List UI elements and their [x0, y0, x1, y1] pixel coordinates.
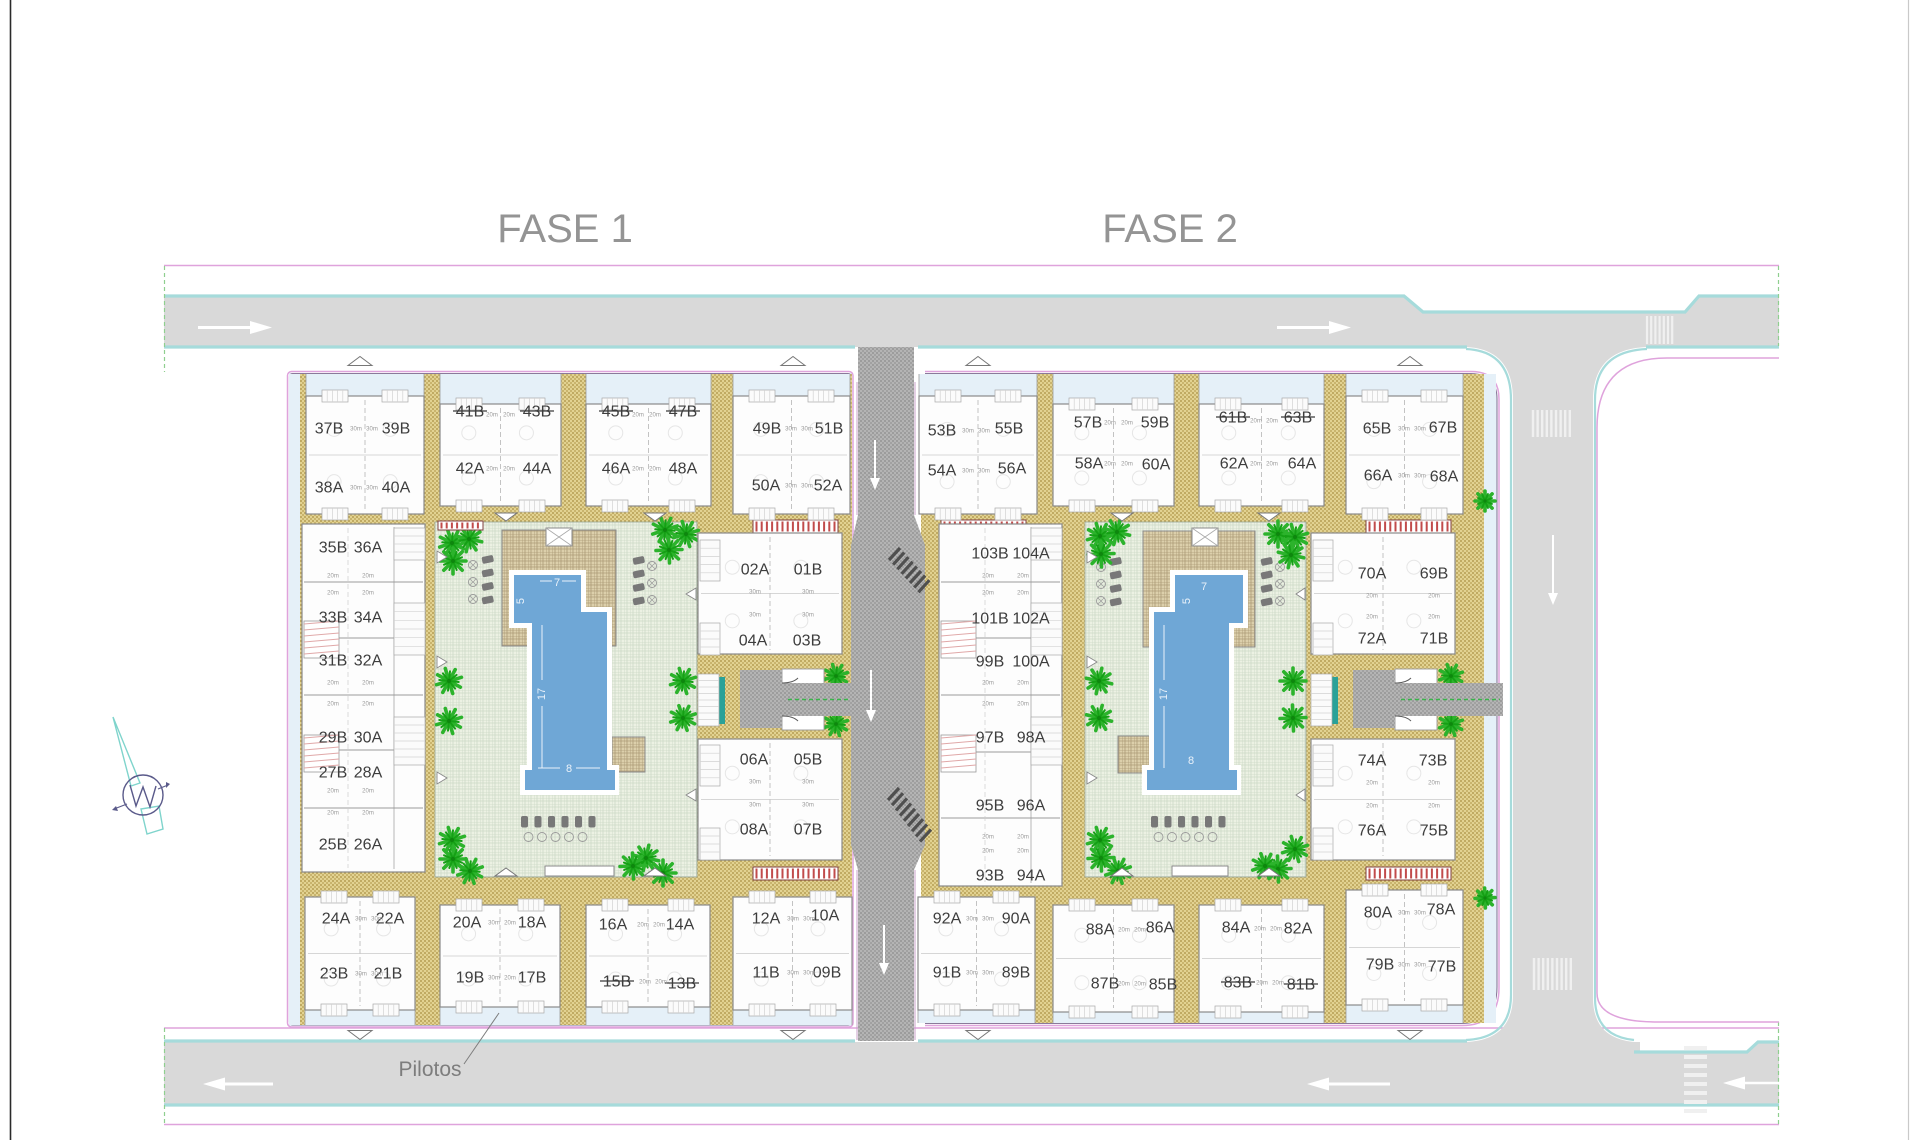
svg-text:20m: 20m: [982, 591, 994, 597]
svg-text:104A: 104A: [1012, 546, 1050, 563]
svg-text:20m: 20m: [362, 591, 374, 597]
svg-text:20m: 20m: [1272, 981, 1284, 987]
svg-text:09B: 09B: [813, 965, 841, 982]
svg-text:20m: 20m: [362, 789, 374, 795]
svg-text:20m: 20m: [1254, 927, 1266, 933]
svg-text:59B: 59B: [1141, 415, 1169, 432]
svg-text:04A: 04A: [739, 633, 768, 650]
svg-text:30m: 30m: [982, 917, 994, 923]
svg-text:83B: 83B: [1224, 975, 1252, 992]
svg-text:20m: 20m: [1134, 928, 1146, 934]
svg-text:30m: 30m: [366, 486, 378, 492]
svg-text:20m: 20m: [1017, 574, 1029, 580]
svg-text:30m: 30m: [366, 427, 378, 433]
svg-text:30m: 30m: [355, 917, 367, 923]
svg-text:57B: 57B: [1074, 415, 1102, 432]
svg-text:20m: 20m: [362, 702, 374, 708]
svg-text:20m: 20m: [1366, 594, 1378, 600]
svg-text:50A: 50A: [752, 478, 781, 495]
svg-text:20m: 20m: [1366, 804, 1378, 810]
svg-text:30m: 30m: [371, 917, 383, 923]
svg-text:30m: 30m: [962, 469, 974, 475]
svg-text:69B: 69B: [1420, 566, 1448, 583]
svg-text:30m: 30m: [749, 803, 761, 809]
svg-text:37B: 37B: [315, 421, 343, 438]
svg-text:30m: 30m: [966, 917, 978, 923]
svg-text:62A: 62A: [1220, 456, 1249, 473]
svg-text:73B: 73B: [1419, 753, 1447, 770]
svg-text:16A: 16A: [599, 917, 628, 934]
svg-text:25B: 25B: [319, 837, 347, 854]
svg-text:30m: 30m: [1414, 474, 1426, 480]
svg-text:98A: 98A: [1017, 730, 1046, 747]
svg-text:20m: 20m: [649, 467, 661, 473]
svg-text:20m: 20m: [1428, 781, 1440, 787]
svg-text:30m: 30m: [1398, 911, 1410, 917]
svg-text:30m: 30m: [1414, 911, 1426, 917]
svg-text:20m: 20m: [1017, 681, 1029, 687]
svg-text:01B: 01B: [794, 562, 822, 579]
svg-text:94A: 94A: [1017, 868, 1046, 885]
svg-text:20m: 20m: [639, 980, 651, 986]
svg-text:90A: 90A: [1002, 911, 1031, 928]
svg-text:30m: 30m: [1414, 427, 1426, 433]
svg-text:20m: 20m: [327, 681, 339, 687]
svg-text:42A: 42A: [456, 461, 485, 478]
svg-text:20m: 20m: [1118, 982, 1130, 988]
svg-text:20m: 20m: [1121, 462, 1133, 468]
svg-text:101B: 101B: [971, 611, 1008, 628]
svg-text:93B: 93B: [976, 868, 1004, 885]
svg-text:66A: 66A: [1364, 468, 1393, 485]
svg-text:72A: 72A: [1358, 631, 1387, 648]
svg-text:46A: 46A: [602, 461, 631, 478]
svg-text:10A: 10A: [811, 908, 840, 925]
svg-text:49B: 49B: [753, 421, 781, 438]
svg-text:30m: 30m: [1398, 963, 1410, 969]
svg-text:79B: 79B: [1366, 957, 1394, 974]
svg-text:20m: 20m: [362, 681, 374, 687]
svg-text:43B: 43B: [523, 404, 551, 421]
svg-text:20m: 20m: [1266, 419, 1278, 425]
svg-text:67B: 67B: [1429, 420, 1457, 437]
svg-text:30m: 30m: [978, 469, 990, 475]
svg-text:89B: 89B: [1002, 965, 1030, 982]
svg-text:99B: 99B: [976, 654, 1004, 671]
svg-text:20m: 20m: [1104, 421, 1116, 427]
svg-text:30m: 30m: [962, 429, 974, 435]
svg-text:76A: 76A: [1358, 823, 1387, 840]
svg-text:45B: 45B: [602, 404, 630, 421]
svg-text:23B: 23B: [320, 966, 348, 983]
svg-text:06A: 06A: [740, 752, 769, 769]
svg-text:05B: 05B: [794, 752, 822, 769]
svg-text:32A: 32A: [354, 653, 383, 670]
svg-text:03B: 03B: [793, 633, 821, 650]
svg-text:60A: 60A: [1142, 457, 1171, 474]
svg-text:14A: 14A: [666, 917, 695, 934]
svg-text:17: 17: [536, 688, 548, 700]
svg-text:20m: 20m: [1121, 421, 1133, 427]
svg-text:61B: 61B: [1219, 410, 1247, 427]
svg-text:30m: 30m: [488, 921, 500, 927]
svg-text:33B: 33B: [319, 610, 347, 627]
svg-text:20m: 20m: [1104, 462, 1116, 468]
svg-text:63B: 63B: [1284, 410, 1312, 427]
svg-text:20A: 20A: [453, 915, 482, 932]
svg-text:30m: 30m: [785, 484, 797, 490]
svg-text:20m: 20m: [649, 413, 661, 419]
svg-text:20m: 20m: [362, 574, 374, 580]
svg-text:51B: 51B: [815, 421, 843, 438]
svg-text:20m: 20m: [982, 681, 994, 687]
svg-text:81B: 81B: [1287, 977, 1315, 994]
svg-text:30m: 30m: [355, 972, 367, 978]
svg-text:26A: 26A: [354, 837, 383, 854]
svg-text:30m: 30m: [787, 917, 799, 923]
svg-text:20m: 20m: [1250, 462, 1262, 468]
svg-text:30m: 30m: [978, 429, 990, 435]
svg-text:20m: 20m: [982, 849, 994, 855]
svg-text:30m: 30m: [803, 971, 815, 977]
svg-text:20m: 20m: [1428, 615, 1440, 621]
svg-text:07B: 07B: [794, 822, 822, 839]
svg-text:20m: 20m: [327, 789, 339, 795]
svg-text:80A: 80A: [1364, 905, 1393, 922]
svg-text:30m: 30m: [1414, 963, 1426, 969]
svg-text:34A: 34A: [354, 610, 383, 627]
svg-text:30m: 30m: [802, 590, 814, 596]
svg-text:36A: 36A: [354, 540, 383, 557]
svg-text:FASE 2: FASE 2: [1102, 207, 1238, 251]
svg-text:30m: 30m: [966, 971, 978, 977]
svg-text:20m: 20m: [504, 976, 516, 982]
svg-text:20m: 20m: [1366, 615, 1378, 621]
svg-text:30m: 30m: [801, 484, 813, 490]
svg-text:75B: 75B: [1420, 823, 1448, 840]
svg-text:19B: 19B: [456, 970, 484, 987]
svg-text:15B: 15B: [603, 974, 631, 991]
svg-text:30m: 30m: [350, 486, 362, 492]
svg-text:47B: 47B: [669, 404, 697, 421]
svg-text:95B: 95B: [976, 798, 1004, 815]
svg-text:92A: 92A: [933, 911, 962, 928]
svg-text:20m: 20m: [1428, 804, 1440, 810]
svg-text:74A: 74A: [1358, 753, 1387, 770]
svg-text:78A: 78A: [1427, 902, 1456, 919]
svg-text:55B: 55B: [995, 421, 1023, 438]
svg-text:64A: 64A: [1288, 456, 1317, 473]
svg-text:96A: 96A: [1017, 798, 1046, 815]
svg-text:20m: 20m: [1366, 781, 1378, 787]
svg-text:58A: 58A: [1075, 456, 1104, 473]
svg-text:20m: 20m: [1256, 981, 1268, 987]
svg-text:20m: 20m: [1017, 591, 1029, 597]
svg-text:20m: 20m: [1134, 982, 1146, 988]
svg-text:82A: 82A: [1284, 921, 1313, 938]
svg-text:20m: 20m: [486, 413, 498, 419]
svg-text:08A: 08A: [740, 822, 769, 839]
svg-text:5: 5: [1181, 598, 1193, 604]
svg-text:18A: 18A: [518, 915, 547, 932]
svg-text:30m: 30m: [1398, 427, 1410, 433]
svg-text:20m: 20m: [1266, 462, 1278, 468]
svg-text:20m: 20m: [1017, 835, 1029, 841]
svg-text:38A: 38A: [315, 480, 344, 497]
svg-text:30m: 30m: [802, 613, 814, 619]
svg-text:20m: 20m: [653, 923, 665, 929]
svg-text:02A: 02A: [741, 562, 770, 579]
svg-text:20m: 20m: [1118, 928, 1130, 934]
svg-text:12A: 12A: [752, 911, 781, 928]
svg-text:77B: 77B: [1428, 959, 1456, 976]
svg-text:102A: 102A: [1012, 611, 1050, 628]
svg-text:8: 8: [566, 763, 572, 775]
svg-text:88A: 88A: [1086, 922, 1115, 939]
svg-text:71B: 71B: [1420, 631, 1448, 648]
svg-text:Pilotos: Pilotos: [398, 1058, 461, 1081]
svg-text:20m: 20m: [362, 811, 374, 817]
svg-text:87B: 87B: [1091, 976, 1119, 993]
svg-text:86A: 86A: [1146, 920, 1175, 937]
svg-text:52A: 52A: [814, 478, 843, 495]
svg-text:53B: 53B: [928, 423, 956, 440]
svg-text:39B: 39B: [382, 421, 410, 438]
svg-text:30m: 30m: [1398, 474, 1410, 480]
svg-text:30A: 30A: [354, 730, 383, 747]
svg-text:8: 8: [1188, 755, 1194, 767]
svg-text:30m: 30m: [350, 427, 362, 433]
svg-text:30m: 30m: [371, 972, 383, 978]
svg-text:20m: 20m: [1270, 927, 1282, 933]
svg-text:20m: 20m: [982, 702, 994, 708]
svg-text:65B: 65B: [1363, 421, 1391, 438]
svg-text:97B: 97B: [976, 730, 1004, 747]
svg-text:17B: 17B: [518, 970, 546, 987]
svg-text:7: 7: [554, 577, 560, 589]
svg-text:103B: 103B: [971, 546, 1008, 563]
svg-text:70A: 70A: [1358, 566, 1387, 583]
svg-text:FASE 1: FASE 1: [497, 207, 633, 251]
svg-text:30m: 30m: [488, 976, 500, 982]
svg-text:20m: 20m: [327, 811, 339, 817]
svg-text:100A: 100A: [1012, 654, 1050, 671]
svg-text:20m: 20m: [486, 467, 498, 473]
svg-text:40A: 40A: [382, 480, 411, 497]
svg-text:20m: 20m: [632, 467, 644, 473]
svg-text:41B: 41B: [456, 404, 484, 421]
svg-text:7: 7: [1201, 581, 1207, 593]
svg-text:20m: 20m: [982, 574, 994, 580]
svg-text:84A: 84A: [1222, 920, 1251, 937]
svg-text:20m: 20m: [982, 835, 994, 841]
svg-text:20m: 20m: [1017, 702, 1029, 708]
svg-text:20m: 20m: [504, 921, 516, 927]
svg-text:17: 17: [1158, 688, 1170, 700]
svg-text:35B: 35B: [319, 540, 347, 557]
svg-text:20m: 20m: [655, 980, 667, 986]
svg-text:30m: 30m: [802, 780, 814, 786]
svg-text:30m: 30m: [803, 917, 815, 923]
svg-text:30m: 30m: [787, 971, 799, 977]
svg-text:13B: 13B: [668, 976, 696, 993]
svg-text:24A: 24A: [322, 911, 351, 928]
svg-text:20m: 20m: [327, 702, 339, 708]
svg-text:30m: 30m: [749, 780, 761, 786]
svg-text:20m: 20m: [1250, 419, 1262, 425]
svg-text:29B: 29B: [319, 730, 347, 747]
svg-text:30m: 30m: [802, 803, 814, 809]
svg-text:20m: 20m: [327, 574, 339, 580]
svg-text:91B: 91B: [933, 965, 961, 982]
svg-text:30m: 30m: [801, 427, 813, 433]
svg-text:20m: 20m: [503, 413, 515, 419]
svg-text:56A: 56A: [998, 461, 1027, 478]
svg-text:28A: 28A: [354, 765, 383, 782]
svg-text:20m: 20m: [637, 923, 649, 929]
svg-text:20m: 20m: [1017, 849, 1029, 855]
svg-text:20m: 20m: [327, 591, 339, 597]
svg-text:20m: 20m: [503, 467, 515, 473]
svg-text:31B: 31B: [319, 653, 347, 670]
svg-text:30m: 30m: [749, 590, 761, 596]
svg-text:68A: 68A: [1430, 469, 1459, 486]
svg-text:5: 5: [515, 598, 527, 604]
svg-text:30m: 30m: [749, 613, 761, 619]
svg-text:54A: 54A: [928, 463, 957, 480]
svg-text:48A: 48A: [669, 461, 698, 478]
svg-text:20m: 20m: [632, 413, 644, 419]
svg-text:27B: 27B: [319, 765, 347, 782]
svg-text:20m: 20m: [1428, 594, 1440, 600]
svg-text:30m: 30m: [982, 971, 994, 977]
svg-text:11B: 11B: [752, 965, 779, 982]
svg-text:30m: 30m: [785, 427, 797, 433]
svg-text:85B: 85B: [1149, 977, 1177, 994]
svg-text:44A: 44A: [523, 461, 552, 478]
